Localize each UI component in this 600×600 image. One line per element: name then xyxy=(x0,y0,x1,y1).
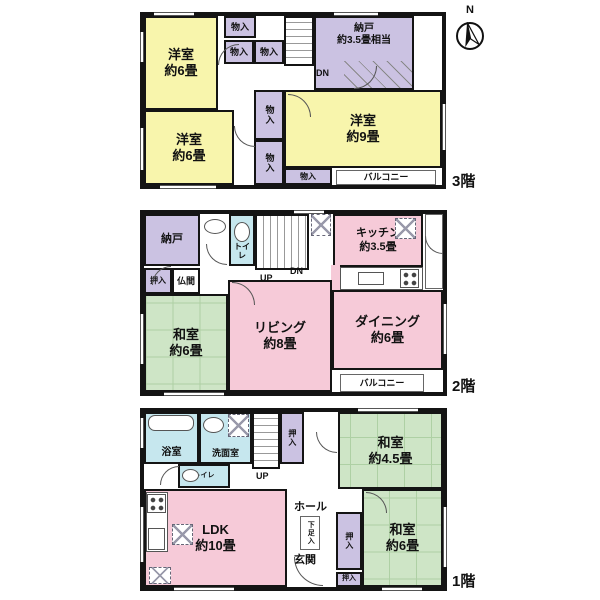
door-arc xyxy=(316,432,337,453)
closet-top-3f: 物入 xyxy=(224,16,256,38)
kitchen-passage xyxy=(331,265,340,292)
equipment-hatch xyxy=(172,524,193,545)
window-mark xyxy=(174,587,234,591)
altar-room-2f: 仏間 xyxy=(172,268,200,294)
floorplan-canvas: N 洋室 約6畳 洋室 約6畳 物入 物入 物入 DN 納戸 約3.5畳相当 xyxy=(0,0,600,600)
equipment-hatch xyxy=(311,214,331,236)
window-mark xyxy=(160,185,216,189)
stove-icon xyxy=(147,494,166,513)
balcony-label: バルコニー xyxy=(364,172,409,183)
washer-hatch xyxy=(228,414,249,437)
room-label: キッチン 約3.5畳 xyxy=(356,227,400,254)
compass-icon xyxy=(450,16,490,56)
toilet-icon xyxy=(234,222,250,242)
floor-label-2f: 2階 xyxy=(452,375,475,396)
sink-icon xyxy=(358,272,384,285)
compass-north-label: N xyxy=(450,4,490,16)
window-mark xyxy=(443,304,447,354)
stairs-dn-label-3f: DN xyxy=(316,68,329,78)
door-arc xyxy=(160,466,179,485)
room-label: 仏間 xyxy=(177,276,195,287)
closet-top-1f: 押入 xyxy=(280,412,304,464)
room-dining-2f: ダイニング 約6畳 xyxy=(332,290,443,370)
door-arc xyxy=(234,126,255,147)
window-mark xyxy=(164,392,224,396)
room-label: 納戸 約3.5畳相当 xyxy=(337,23,391,47)
stairs-3f xyxy=(284,16,314,66)
closet-label: 押入 xyxy=(287,429,297,447)
room-label: 和室 約4.5畳 xyxy=(368,435,412,467)
window-mark xyxy=(443,507,447,567)
bathtub-icon xyxy=(148,415,194,431)
balcony-label: バルコニー xyxy=(360,378,405,389)
hall-label: ホール xyxy=(294,498,327,514)
closet-label: 物入 xyxy=(264,153,275,173)
closet-bottom-1f: 押入 xyxy=(336,572,362,587)
window-mark xyxy=(140,418,144,448)
window-mark xyxy=(382,587,422,591)
balcony-2f: バルコニー xyxy=(340,374,424,392)
floor-3f: 洋室 約6畳 洋室 約6畳 物入 物入 物入 DN 納戸 約3.5畳相当 洋室 … xyxy=(140,12,446,189)
closet-label: 下足入 xyxy=(306,521,315,545)
washbasin-icon xyxy=(204,219,226,234)
room-label: リビング 約8畳 xyxy=(254,320,306,352)
closet-label: 物入 xyxy=(260,47,278,58)
closet-mid-upper-3f: 物入 xyxy=(254,90,284,140)
room-label: LDK 約10畳 xyxy=(195,522,235,554)
room-western-9-3f: 洋室 約9畳 xyxy=(284,90,442,168)
closet-label: 押入 xyxy=(342,575,356,584)
room-label: 納戸 xyxy=(161,233,183,246)
compass: N xyxy=(450,4,490,58)
room-japanese-6-2f: 和室 約6畳 xyxy=(144,294,228,392)
closet-label: 押入 xyxy=(344,532,354,550)
stairs-up-label-1f: UP xyxy=(256,471,269,481)
room-storage-2f: 納戸 xyxy=(144,214,200,266)
door-arc xyxy=(206,244,227,265)
stairs-2f xyxy=(255,214,309,270)
closet-bottom-3f: 物入 xyxy=(284,168,332,185)
window-mark xyxy=(154,12,194,16)
floor-1f: 浴室 洗面室 トイレ UP 押入 和室 約4.5畳 LDK 約10畳 ホール 下… xyxy=(140,408,447,591)
room-label: 和室 約6畳 xyxy=(386,522,419,554)
stove-icon xyxy=(400,269,419,288)
sink-icon xyxy=(148,528,165,550)
stairs-1f xyxy=(252,412,280,469)
closet-label: 物入 xyxy=(300,172,316,182)
closet-side-1f: 押入 xyxy=(336,512,362,570)
window-mark xyxy=(442,104,446,150)
washbasin-icon xyxy=(203,417,224,433)
room-label: 洋室 約6畳 xyxy=(164,47,197,79)
equipment-hatch xyxy=(395,218,416,239)
closet-mid-lower-3f: 物入 xyxy=(254,140,284,185)
room-japanese-45-1f: 和室 約4.5畳 xyxy=(338,412,443,489)
window-mark xyxy=(334,12,378,16)
window-mark xyxy=(140,507,144,562)
closet-label: 物入 xyxy=(264,105,275,125)
room-label: 洗面室 xyxy=(212,448,239,459)
room-western-6a-3f: 洋室 約6畳 xyxy=(144,16,218,110)
room-label: ダイニング 約6畳 xyxy=(355,314,420,346)
room-label: 洋室 約6畳 xyxy=(172,132,205,164)
closet-label: 物入 xyxy=(231,22,249,33)
stairs-up-label-2f: UP xyxy=(260,273,273,283)
balcony-3f: バルコニー xyxy=(336,170,436,185)
window-mark xyxy=(140,314,144,364)
room-western-6b-3f: 洋室 約6畳 xyxy=(144,110,234,185)
equipment-hatch xyxy=(149,567,171,584)
entrance-label: 玄関 xyxy=(294,551,316,567)
room-label: 浴室 xyxy=(162,447,182,459)
shoe-closet-1f: 下足入 xyxy=(300,516,320,550)
closet-right-3f: 物入 xyxy=(254,40,284,64)
room-label: 和室 約6畳 xyxy=(169,327,202,359)
door-arc xyxy=(218,44,239,65)
window-mark xyxy=(294,210,324,214)
floor-label-3f: 3階 xyxy=(452,170,475,191)
window-mark xyxy=(140,128,144,170)
window-mark xyxy=(140,32,144,62)
window-mark xyxy=(358,408,418,412)
stairs-dn-label-2f: DN xyxy=(290,266,303,276)
floor-2f: 納戸 トイレ UP DN キッチン 約3.5畳 押入 仏間 和室 約6畳 リビン… xyxy=(140,210,447,396)
toilet-icon xyxy=(182,469,199,482)
room-label: トイレ xyxy=(231,242,253,262)
room-label: 洋室 約9畳 xyxy=(346,113,379,145)
floor-label-1f: 1階 xyxy=(452,570,475,591)
